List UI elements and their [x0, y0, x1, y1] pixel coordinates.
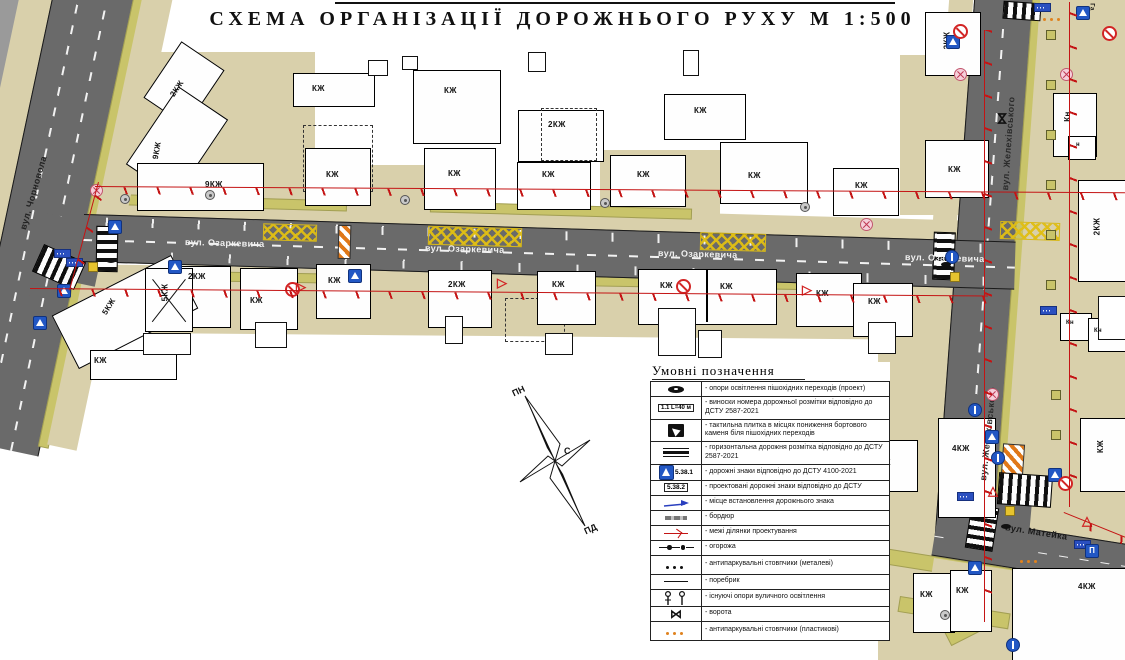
- pedestrian-crossing-sign-icon: [968, 561, 982, 575]
- traffic-scheme-sheet: СХЕМА ОРГАНІЗАЦІЇ ДОРОЖНЬОГО РУХУ М 1:50…: [0, 0, 1125, 660]
- project-boundary: [1069, 2, 1077, 507]
- legend-row: 5.38.2 - проектовані дорожні знаки відпо…: [651, 480, 889, 495]
- legend-row: - горизонтальна дорожня розмітка відпові…: [651, 441, 889, 464]
- tactile-plate-icon: [1005, 506, 1015, 516]
- building: [1012, 568, 1125, 660]
- building-label: КЖ: [312, 84, 325, 93]
- pedestrian-crossing-sign-icon: [168, 260, 182, 274]
- crossing-light-support-icon: [106, 258, 116, 263]
- road-marking-icon: [663, 446, 689, 460]
- sign-plate-icon: [54, 249, 71, 258]
- building-label: КЖ: [94, 356, 107, 365]
- building: [913, 573, 955, 633]
- building: [424, 148, 496, 210]
- planter: [1046, 280, 1056, 290]
- sign-number-label: 5.38.1: [675, 469, 693, 476]
- legend-row: - опори освітлення пішохідних переходів …: [651, 382, 889, 396]
- building: [293, 73, 375, 107]
- street-light-existing-icon: [600, 198, 610, 208]
- shed: [402, 56, 418, 70]
- building: [664, 94, 746, 140]
- legend-row: - бордюр: [651, 510, 889, 525]
- curb-icon: [665, 516, 687, 520]
- building-label: 2КЖ: [188, 272, 206, 281]
- building: [240, 268, 298, 330]
- work-zone-hatch: [338, 225, 352, 259]
- prohibition-sign-icon: [1102, 26, 1117, 41]
- pedestrian-crossing-sign-icon: [33, 316, 47, 330]
- gate-icon: ⋈: [996, 112, 1009, 125]
- building-label: 2КЖ: [1092, 218, 1101, 236]
- shed: [143, 333, 191, 355]
- pedestrian-crossing-sign-icon: [1076, 6, 1090, 20]
- building: [413, 70, 501, 144]
- crossing-light-support-icon: [1001, 524, 1011, 529]
- building: [1080, 418, 1125, 492]
- legend-row: - поребрик: [651, 574, 889, 589]
- shed: [545, 333, 573, 355]
- building-label: 2КЖ: [548, 120, 566, 129]
- tactile-plate-icon: [950, 272, 960, 282]
- building-label: Кн: [1094, 328, 1102, 334]
- pedestrian-crossing-sign-icon: [659, 465, 674, 480]
- shed: [255, 322, 287, 348]
- plastic-bollards-icon: [1020, 550, 1041, 568]
- shed: [698, 330, 722, 358]
- street-label-ozarkevycha: вул. Озаркевича: [658, 248, 738, 260]
- crosswalk: [997, 472, 1053, 508]
- building-label: КЖ: [720, 282, 733, 291]
- light-support-icon: [668, 386, 684, 393]
- building-label: КЖ: [1096, 440, 1105, 453]
- building-label: КЖ: [948, 165, 961, 174]
- crossing-light-support-icon: [941, 262, 951, 267]
- building-label: 4КЖ: [1078, 582, 1096, 591]
- building-label: КЖ: [748, 171, 761, 180]
- building-label: КЖ: [448, 169, 461, 178]
- shed: [445, 316, 463, 344]
- street-light-existing-icon: [800, 202, 810, 212]
- marking-callout-icon: 1.1 L=40 м: [658, 404, 694, 412]
- planter: [1046, 30, 1056, 40]
- planter: [1051, 430, 1061, 440]
- prohibition-sign-icon: [676, 279, 691, 294]
- projected-sign-icon: 5.38.2: [664, 483, 688, 492]
- building-label: КЖ: [855, 181, 868, 190]
- parking-sign-icon: П: [1085, 544, 1099, 558]
- street-label-ozarkevycha: вул. Озаркевича: [185, 237, 265, 249]
- street-light-existing-icon: [940, 610, 950, 620]
- edge-line-icon: [664, 581, 688, 582]
- compass-center-label: С: [564, 446, 571, 456]
- building-label: КЖ: [552, 280, 565, 289]
- gate-icon: ⋈: [670, 608, 682, 620]
- plastic-bollards-icon: [1043, 8, 1064, 26]
- shed: [528, 52, 546, 72]
- compass-star: [498, 386, 608, 536]
- legend-row: 5.38.1 - дорожні знаки відповідно до ДСТ…: [651, 464, 889, 480]
- street-light-pole-icon: [662, 590, 690, 606]
- prohibition-sign-icon: [953, 24, 968, 39]
- project-boundary: [984, 30, 992, 622]
- fence-icon: [659, 545, 694, 550]
- building-label: КЖ: [444, 86, 457, 95]
- legend-row: ⋈ - ворота: [651, 606, 889, 621]
- building-label: КЖ: [542, 170, 555, 179]
- street-light-project-icon: [860, 218, 873, 231]
- planter: [1046, 230, 1056, 240]
- yield-sign-icon: ▷: [497, 276, 507, 289]
- legend-row: - антипаркувальні стовпчики (металеві): [651, 555, 889, 574]
- shed: [683, 50, 699, 76]
- parcel-outline: [541, 108, 597, 161]
- sign-location-icon: [663, 497, 689, 509]
- street-light-project-icon: [954, 68, 967, 81]
- legend-row: - огорожа: [651, 540, 889, 555]
- legend-row: - межі ділянки проектування: [651, 525, 889, 540]
- shed: [658, 308, 696, 356]
- yellow-box-marking: [263, 223, 317, 241]
- legend: Умовні позначення - опори освітлення піш…: [650, 362, 890, 641]
- shed: [868, 322, 896, 354]
- legend-row: - місце встановлення дорожнього знака: [651, 495, 889, 510]
- building-label: 4КЖ: [952, 444, 970, 453]
- sheet-top-rule: [335, 2, 895, 4]
- building-label: КЖ: [637, 170, 650, 179]
- building-label: КЖ: [328, 276, 341, 285]
- building-label: 2КЖ: [448, 280, 466, 289]
- planter: [1051, 390, 1061, 400]
- compass-rose: ПН С ПД: [498, 386, 608, 536]
- tactile-plate-icon: [668, 424, 684, 437]
- sign-plate-icon: [957, 492, 974, 501]
- building: [610, 155, 686, 207]
- pedestrian-crossing-sign-icon: [348, 269, 362, 283]
- legend-row: - існуючі опори вуличного освітлення: [651, 589, 889, 606]
- building-label: КЖ: [326, 170, 339, 179]
- legend-row: 1.1 L=40 м - виноски номера дорожньої ро…: [651, 396, 889, 419]
- pedestrian-crossing-sign-icon: [108, 220, 122, 234]
- planter: [1046, 130, 1056, 140]
- building-label: КЖ: [660, 281, 673, 290]
- building-label: КЖ: [694, 106, 707, 115]
- mandatory-direction-sign-icon: [991, 451, 1005, 465]
- shed: [368, 60, 388, 76]
- mandatory-direction-sign-icon: [1006, 638, 1020, 652]
- metal-bollards-icon: [666, 556, 687, 574]
- building-label: КЖ: [920, 590, 933, 599]
- sign-plate-icon: [1040, 306, 1057, 315]
- tactile-plate-icon: [88, 262, 98, 272]
- legend-title: Умовні позначення: [652, 363, 805, 380]
- project-boundary-icon: [664, 530, 688, 536]
- street-light-existing-icon: [400, 195, 410, 205]
- street-light-existing-icon: [120, 194, 130, 204]
- planter: [1046, 80, 1056, 90]
- planter: [1046, 180, 1056, 190]
- street-label-ozarkevycha: вул. Озаркевича: [425, 243, 505, 255]
- plastic-bollards-icon: [666, 622, 687, 640]
- building-label: КЖ: [956, 586, 969, 595]
- mandatory-direction-sign-icon: [968, 403, 982, 417]
- legend-row: - тактильна плитка в місцях пониження бо…: [651, 419, 889, 442]
- legend-row: - антипаркувальні стовпчики (пластикові): [651, 621, 889, 640]
